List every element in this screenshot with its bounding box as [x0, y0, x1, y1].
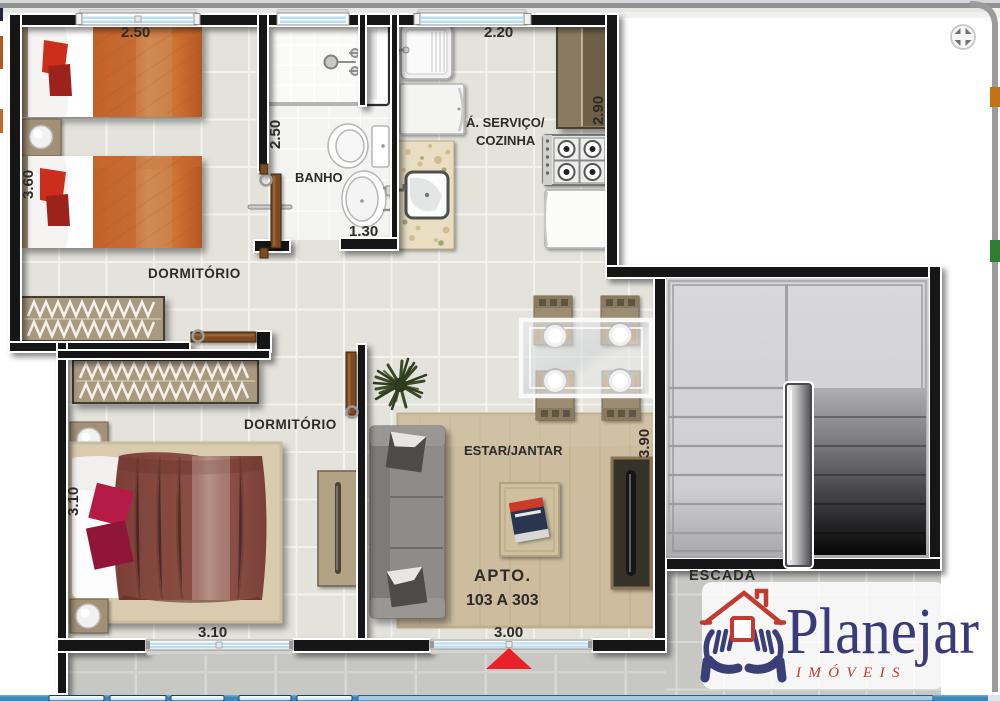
- svg-text:IMÓVEIS: IMÓVEIS: [795, 664, 906, 681]
- svg-text:3.00: 3.00: [494, 624, 523, 641]
- svg-text:ESCADA: ESCADA: [689, 568, 756, 584]
- svg-text:2.90: 2.90: [590, 96, 607, 125]
- svg-text:2.50: 2.50: [121, 24, 150, 41]
- svg-text:DORMITÓRIO: DORMITÓRIO: [148, 266, 241, 281]
- svg-text:ESTAR/JANTAR: ESTAR/JANTAR: [464, 443, 563, 458]
- svg-text:3.10: 3.10: [198, 624, 227, 641]
- svg-text:2.50: 2.50: [267, 120, 284, 149]
- svg-text:103 A 303: 103 A 303: [466, 592, 539, 609]
- svg-text:2.20: 2.20: [484, 24, 513, 41]
- svg-text:COZINHA: COZINHA: [476, 133, 536, 148]
- svg-text:3.60: 3.60: [20, 170, 37, 199]
- svg-text:BANHO: BANHO: [295, 170, 343, 185]
- svg-text:DORMITÓRIO: DORMITÓRIO: [244, 417, 337, 432]
- svg-text:3.90: 3.90: [636, 429, 653, 458]
- svg-text:Planejar: Planejar: [786, 595, 979, 668]
- svg-text:1.30: 1.30: [349, 223, 378, 240]
- svg-text:Á. SERVIÇO/: Á. SERVIÇO/: [466, 115, 545, 130]
- svg-text:APTO.: APTO.: [474, 567, 532, 585]
- svg-text:3.10: 3.10: [65, 487, 82, 516]
